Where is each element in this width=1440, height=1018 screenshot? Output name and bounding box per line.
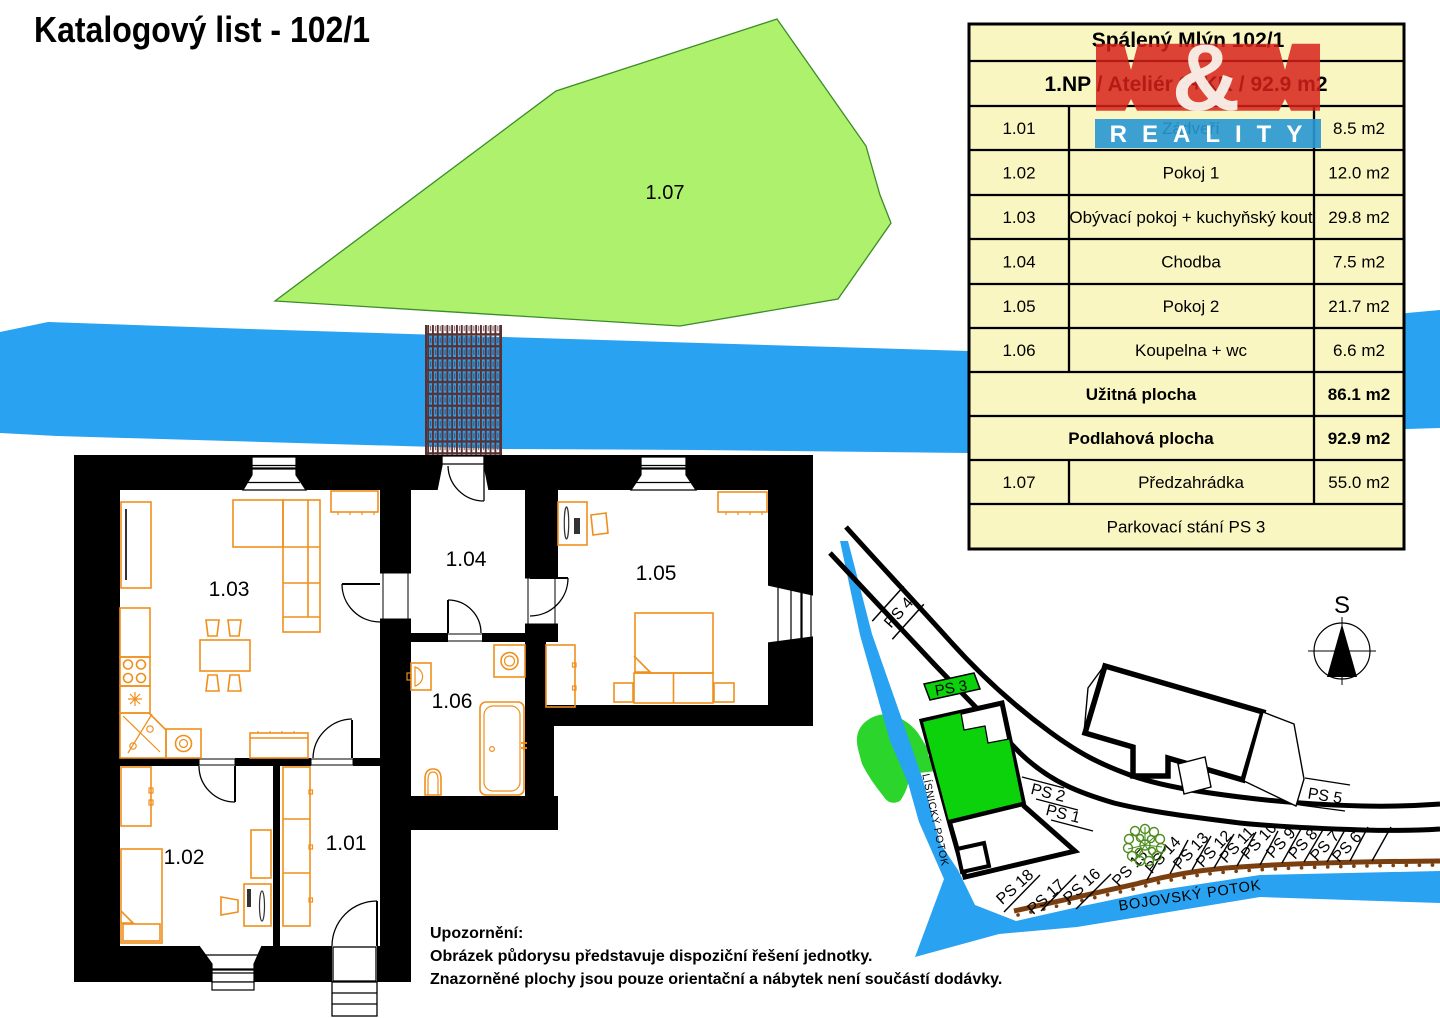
svg-text:1.04: 1.04 bbox=[446, 548, 487, 571]
svg-text:Katalogový list - 102/1: Katalogový list - 102/1 bbox=[34, 9, 370, 50]
svg-text:Obývací pokoj + kuchyňský kout: Obývací pokoj + kuchyňský kout bbox=[1069, 208, 1313, 227]
svg-text:&: & bbox=[1172, 25, 1241, 131]
svg-text:12.0 m2: 12.0 m2 bbox=[1328, 164, 1389, 183]
svg-text:6.6 m2: 6.6 m2 bbox=[1333, 341, 1385, 360]
svg-text:1.07: 1.07 bbox=[1002, 473, 1035, 492]
svg-text:1.06: 1.06 bbox=[1002, 341, 1035, 360]
svg-text:1.03: 1.03 bbox=[209, 578, 250, 601]
svg-text:1.03: 1.03 bbox=[1002, 208, 1035, 227]
svg-text:7.5 m2: 7.5 m2 bbox=[1333, 253, 1385, 272]
svg-text:Parkovací stání PS 3: Parkovací stání PS 3 bbox=[1107, 518, 1266, 537]
svg-text:Chodba: Chodba bbox=[1161, 253, 1221, 272]
svg-text:S: S bbox=[1334, 592, 1350, 619]
svg-text:1.01: 1.01 bbox=[1002, 119, 1035, 138]
svg-text:Koupelna + wc: Koupelna + wc bbox=[1135, 341, 1247, 360]
svg-text:86.1 m2: 86.1 m2 bbox=[1328, 385, 1390, 404]
svg-text:Obrázek půdorysu představuje d: Obrázek půdorysu představuje dispoziční … bbox=[430, 948, 872, 965]
svg-text:8.5 m2: 8.5 m2 bbox=[1333, 119, 1385, 138]
svg-text:Znazorněné plochy jsou pouze o: Znazorněné plochy jsou pouze orientační … bbox=[430, 971, 1002, 988]
svg-text:1.02: 1.02 bbox=[1002, 164, 1035, 183]
svg-text:Pokoj 2: Pokoj 2 bbox=[1163, 297, 1220, 316]
svg-text:1.01: 1.01 bbox=[326, 832, 367, 855]
svg-text:1.05: 1.05 bbox=[1002, 297, 1035, 316]
svg-text:Podlahová plocha: Podlahová plocha bbox=[1068, 429, 1214, 448]
svg-text:REALITY: REALITY bbox=[1110, 121, 1318, 148]
svg-text:Předzahrádka: Předzahrádka bbox=[1138, 473, 1244, 492]
svg-text:29.8 m2: 29.8 m2 bbox=[1328, 208, 1389, 227]
svg-text:Užitná plocha: Užitná plocha bbox=[1086, 385, 1197, 404]
svg-text:Upozornění:: Upozornění: bbox=[430, 925, 523, 942]
svg-text:92.9 m2: 92.9 m2 bbox=[1328, 429, 1390, 448]
svg-text:Pokoj 1: Pokoj 1 bbox=[1163, 164, 1220, 183]
svg-text:55.0 m2: 55.0 m2 bbox=[1328, 473, 1389, 492]
svg-text:1.07: 1.07 bbox=[646, 182, 685, 204]
svg-text:1.05: 1.05 bbox=[636, 562, 677, 585]
svg-text:1.02: 1.02 bbox=[164, 846, 205, 869]
svg-text:21.7 m2: 21.7 m2 bbox=[1328, 297, 1389, 316]
svg-text:1.04: 1.04 bbox=[1002, 253, 1035, 272]
svg-text:1.06: 1.06 bbox=[432, 690, 473, 713]
